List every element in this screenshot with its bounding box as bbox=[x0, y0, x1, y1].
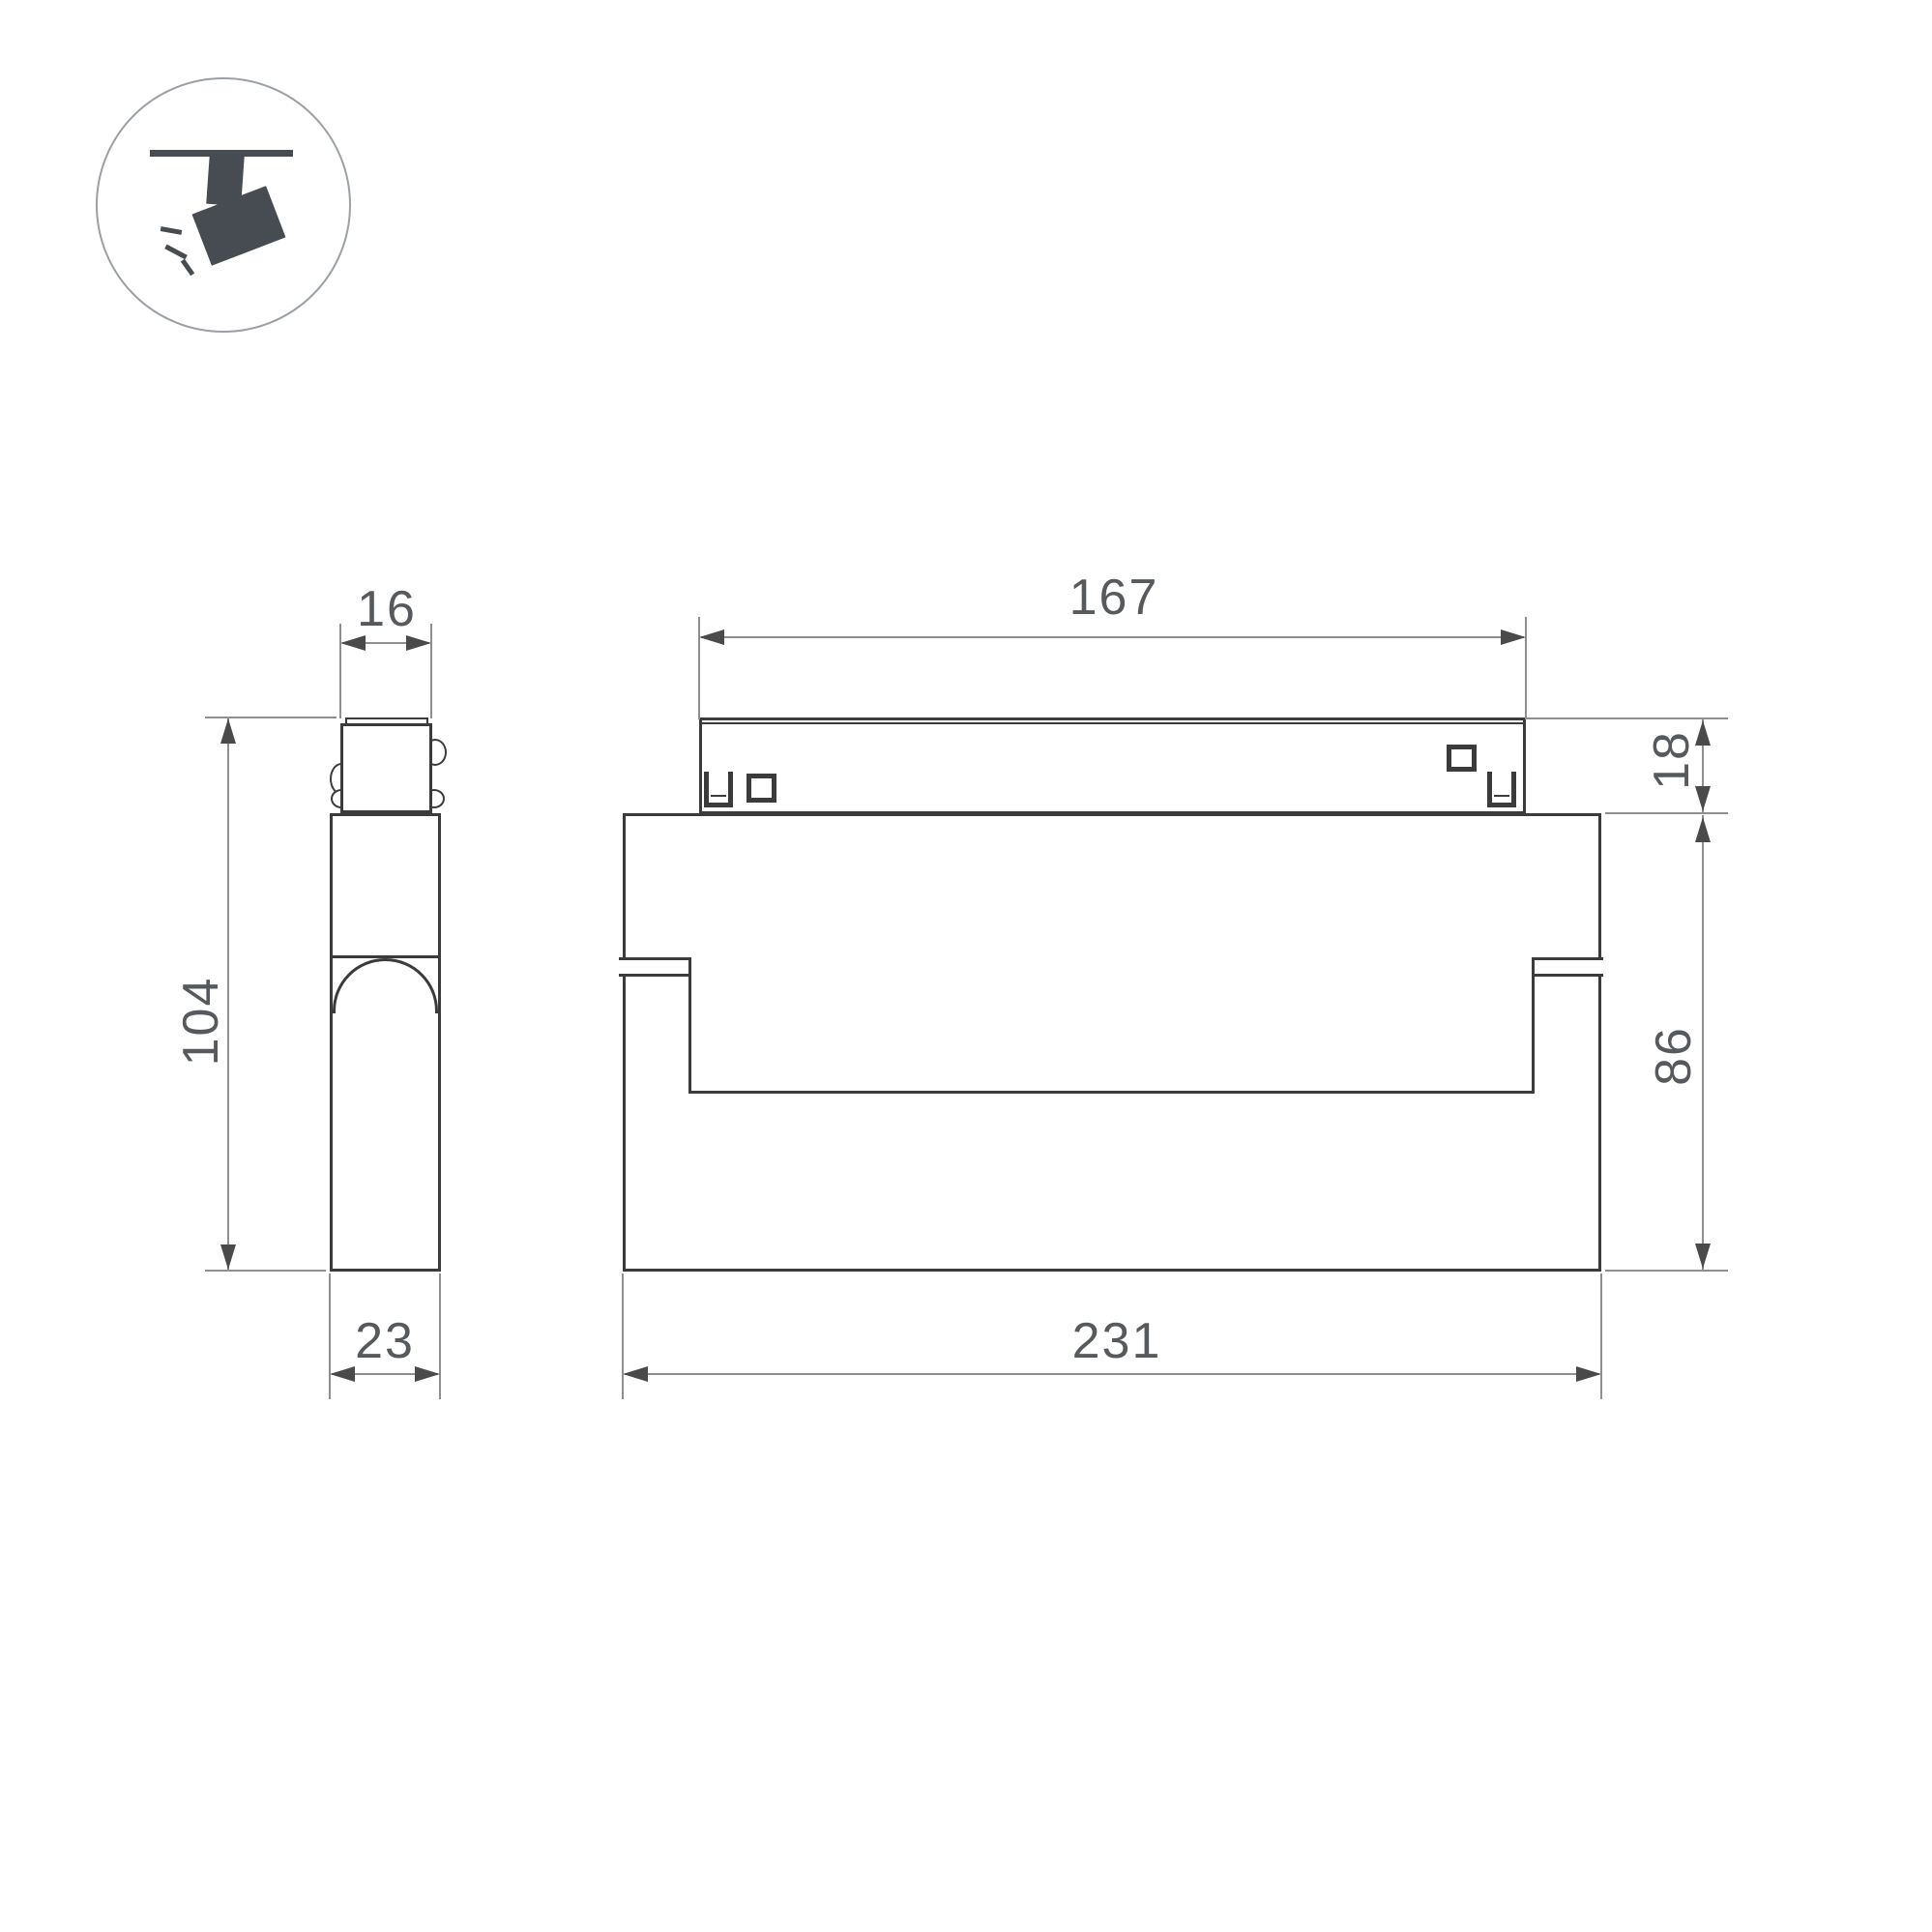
front-panel-right-edge bbox=[1532, 957, 1535, 1093]
front-rail-clip-u-inner bbox=[711, 795, 726, 797]
side-adapter-cap bbox=[345, 717, 428, 725]
dim-label-167: 167 bbox=[1041, 569, 1186, 627]
front-panel-top-edge bbox=[688, 1091, 1535, 1094]
side-track-adapter bbox=[340, 723, 432, 813]
dim-label-16: 16 bbox=[338, 580, 435, 638]
arrowhead bbox=[623, 1366, 648, 1382]
side-body-outline bbox=[330, 813, 441, 1272]
front-rail-clip-square bbox=[746, 774, 776, 803]
front-rail-clip-u bbox=[1487, 772, 1516, 807]
dimension-line bbox=[701, 636, 1524, 638]
extension-line bbox=[1605, 812, 1728, 814]
front-rail-clip-square bbox=[1447, 745, 1477, 772]
front-rail-inner-line bbox=[702, 722, 1523, 724]
extension-line bbox=[1605, 1270, 1728, 1272]
front-panel-left-edge bbox=[688, 957, 691, 1093]
arrowhead bbox=[1695, 1244, 1711, 1269]
front-track-rail bbox=[699, 717, 1526, 814]
front-rail-clip-u bbox=[704, 772, 733, 807]
front-rail-clip-u-inner bbox=[1494, 795, 1509, 797]
extension-line bbox=[205, 1270, 326, 1272]
track-light-dimension-drawing: 16 104 23 167 18 bbox=[0, 0, 1932, 1932]
dim-label-18: 18 bbox=[1643, 712, 1701, 808]
dim-label-104: 104 bbox=[172, 953, 230, 1089]
arrowhead bbox=[220, 1244, 236, 1270]
front-body-outline bbox=[623, 813, 1601, 1272]
dim-label-86: 86 bbox=[1645, 1008, 1703, 1104]
arrowhead bbox=[1576, 1366, 1601, 1382]
arrowhead bbox=[1501, 629, 1526, 645]
dim-label-23: 23 bbox=[337, 1312, 433, 1370]
dimension-line bbox=[625, 1373, 1599, 1375]
arrowhead bbox=[699, 629, 724, 645]
arrowhead bbox=[220, 718, 236, 744]
front-left-notch bbox=[619, 957, 690, 977]
front-right-notch bbox=[1532, 957, 1603, 977]
arrowhead bbox=[1695, 817, 1711, 842]
dim-label-231: 231 bbox=[1044, 1312, 1189, 1370]
